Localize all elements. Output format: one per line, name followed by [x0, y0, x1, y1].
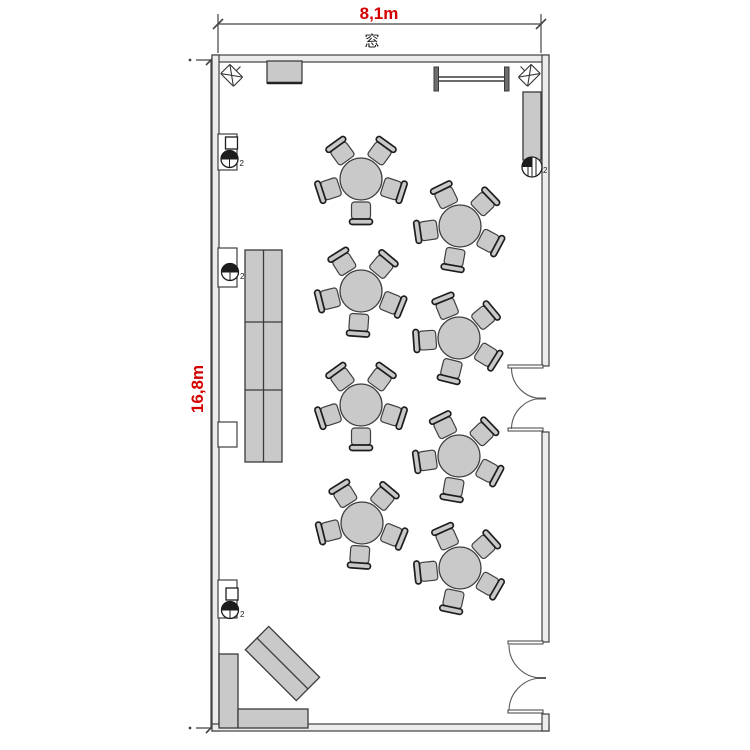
outlet-box [226, 137, 238, 149]
wall-right-lower [542, 714, 549, 731]
right-wall-board [523, 92, 541, 160]
wall-niche [218, 422, 237, 447]
round-table [340, 158, 382, 200]
corner-counter-horizontal [238, 709, 308, 728]
dim-dot [189, 727, 192, 730]
round-table-group [315, 478, 408, 569]
window-label: 窓 [364, 32, 379, 50]
wall-top [212, 55, 549, 62]
dim-dot [189, 59, 192, 62]
dimension-annotations [189, 14, 546, 733]
speaker-icon [514, 60, 540, 86]
chair-icon [315, 517, 342, 545]
door-swing-arc [512, 399, 543, 430]
chair-icon [414, 559, 439, 584]
door-jamb [508, 710, 543, 713]
door-swing-arc [509, 678, 542, 710]
double-door-upper [512, 368, 547, 429]
corner-counter-vertical [219, 654, 238, 728]
round-table [340, 270, 382, 312]
outlet-count-label: 2 [240, 610, 245, 619]
round-table [439, 205, 481, 247]
round-table-group [414, 522, 506, 615]
round-tables-layer [314, 135, 506, 614]
chair-icon [379, 175, 408, 204]
door-jamb [508, 365, 543, 368]
round-table [341, 502, 383, 544]
diagonal-desk [245, 626, 319, 700]
double-door-lower [509, 645, 546, 710]
speaker-icon [221, 60, 247, 86]
chair-icon [440, 477, 467, 503]
wall-right-upper [542, 55, 549, 366]
round-table [438, 317, 480, 359]
outlet-count-label: 2 [240, 272, 245, 281]
wall-right-middle [542, 432, 549, 642]
door-jamb [508, 641, 543, 644]
floor-plan: 8,1m 窓 16,8m [0, 0, 750, 750]
chair-icon [350, 202, 373, 225]
wall-outlet-symbol: 2 [222, 264, 246, 282]
cabinet [267, 61, 302, 83]
chair-icon [350, 428, 373, 451]
chair-icon [441, 247, 468, 273]
chair-icon [379, 401, 408, 430]
round-table-group [314, 361, 408, 450]
door-swing-arc [509, 645, 542, 678]
width-dimension-label: 8,1m [360, 4, 399, 23]
chair-icon [437, 358, 465, 385]
door-jamb [508, 428, 543, 431]
round-table [438, 435, 480, 477]
outlet-count-label: 2 [543, 166, 548, 175]
door-swing-arc [512, 368, 543, 399]
chair-icon [439, 588, 466, 615]
chair-icon [346, 313, 371, 337]
round-table-group [314, 135, 408, 224]
round-table [439, 547, 481, 589]
chair-icon [412, 448, 437, 474]
round-table-group [314, 246, 407, 337]
round-table-group [413, 180, 505, 273]
service-counter [245, 250, 282, 462]
chair-icon [314, 285, 341, 313]
chair-icon [413, 218, 438, 244]
chair-icon [314, 401, 343, 430]
round-table-group [413, 292, 504, 385]
chair-icon [347, 545, 372, 569]
round-table-group [412, 410, 504, 503]
outlet-count-label: 2 [240, 159, 245, 168]
round-table [340, 384, 382, 426]
chair-icon [413, 328, 437, 353]
chair-icon [314, 175, 343, 204]
height-dimension-label: 16,8m [188, 365, 207, 413]
screen-symbol [434, 67, 509, 91]
outlet-box [226, 588, 238, 600]
